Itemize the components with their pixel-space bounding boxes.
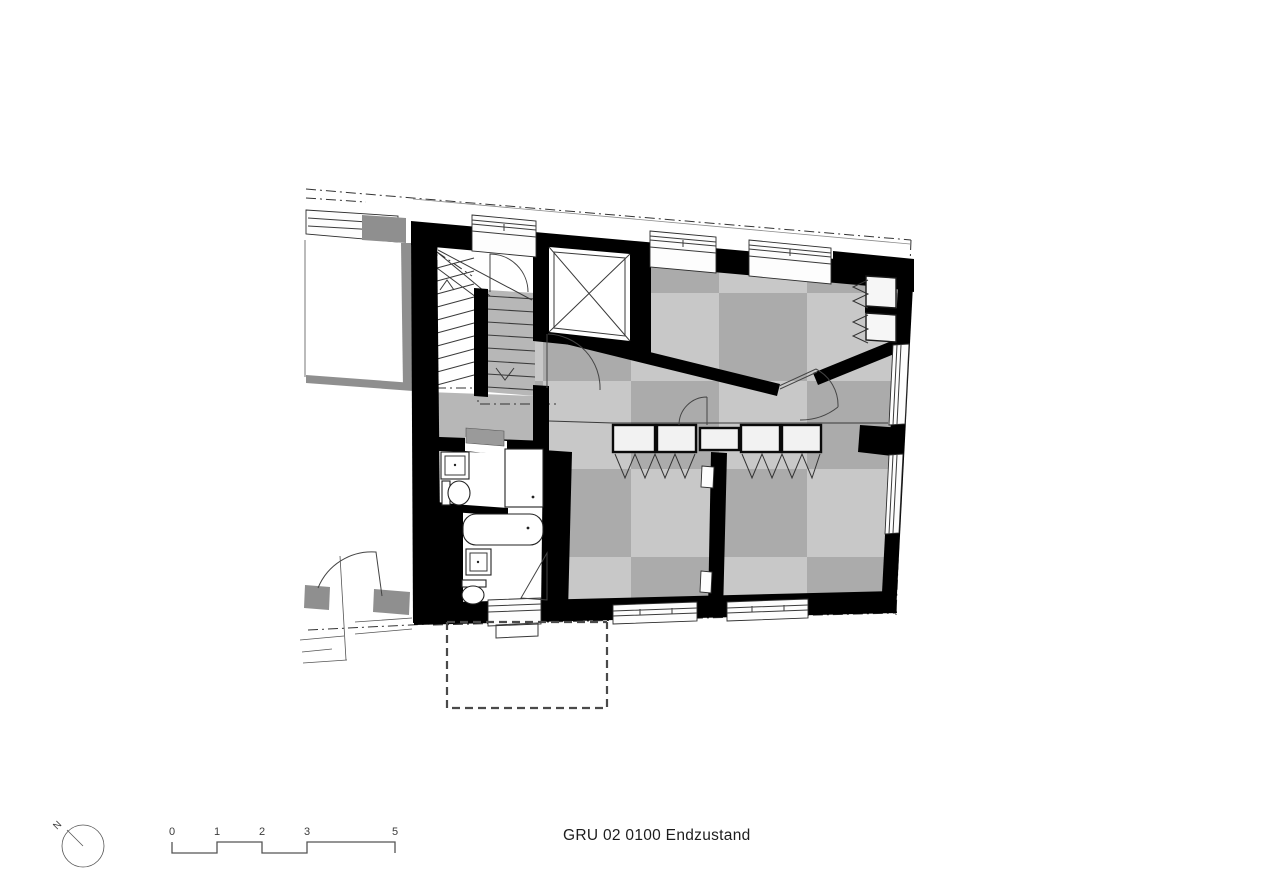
exterior-wall-left <box>411 224 441 623</box>
stair-spine-wall <box>474 288 488 397</box>
door-leaf <box>466 428 504 446</box>
neighbor-wall <box>362 215 406 243</box>
elevator-wall <box>630 244 651 353</box>
north-indicator: N <box>51 819 104 867</box>
toilet <box>448 481 470 505</box>
neighbor-building <box>300 210 430 663</box>
floor-plan-drawing: N 0 1 2 3 5 <box>0 0 1280 888</box>
wardrobe-unit <box>741 425 780 452</box>
terrace-outline <box>447 622 607 708</box>
floor-plan-sheet: { "drawing": { "title": "GRU 02 0100 End… <box>0 0 1280 888</box>
toilet <box>462 586 484 604</box>
scale-tick-label: 1 <box>214 826 220 838</box>
scale-tick-label: 2 <box>259 826 265 838</box>
scale-bar-line <box>172 842 395 853</box>
shower <box>505 449 543 507</box>
scale-bar: 0 1 2 3 5 <box>169 826 398 853</box>
closet <box>866 313 896 342</box>
north-needle <box>67 830 83 846</box>
stair-lower-flight <box>487 290 535 396</box>
elevator-shaft <box>549 247 630 341</box>
scale-tick-label: 3 <box>304 826 310 838</box>
closet <box>866 276 896 308</box>
drawing-title: GRU 02 0100 Endzustand <box>563 827 751 845</box>
wardrobe-unit <box>657 425 696 452</box>
bathtub <box>463 514 543 545</box>
scale-tick-label: 5 <box>392 826 398 838</box>
wardrobe-unit <box>782 425 821 452</box>
wardrobe-unit <box>613 425 655 452</box>
wardrobe-unit <box>700 428 739 450</box>
north-label: N <box>51 819 64 832</box>
scale-tick-label: 0 <box>169 826 175 838</box>
